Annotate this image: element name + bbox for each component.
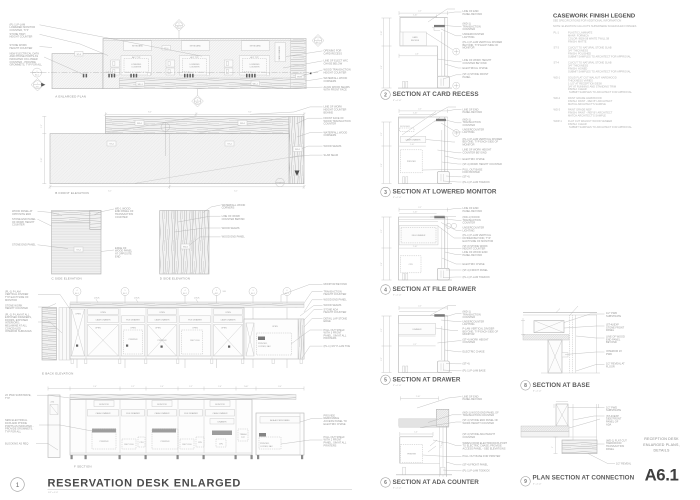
svg-text:A6.1: A6.1: [183, 292, 187, 295]
svg-text:1/2" REVEAL: 1/2" REVEAL: [616, 462, 632, 466]
svg-text:LOCK: LOCK: [134, 298, 140, 300]
svg-text:HEIGHT COUNTER: HEIGHT COUNTER: [10, 35, 33, 39]
svg-text:2'-10": 2'-10": [41, 157, 43, 162]
svg-text:3" = 1'-0": 3" = 1'-0": [393, 100, 402, 102]
svg-text:1'-10": 1'-10": [413, 246, 418, 248]
svg-text:WD-1: WD-1: [295, 149, 301, 151]
svg-text:CORNERS: CORNERS: [324, 79, 337, 83]
svg-text:A6.1: A6.1: [316, 41, 320, 44]
svg-text:FOR PRINTER: FOR PRINTER: [463, 170, 480, 174]
svg-text:PLAN SECTION AT CONNECTION: PLAN SECTION AT CONNECTION: [533, 475, 635, 482]
svg-text:(ST-4): (ST-4): [463, 362, 470, 366]
svg-text:CPU: CPU: [409, 264, 414, 266]
svg-text:COUNTER BEHIND: COUNTER BEHIND: [222, 217, 245, 221]
svg-text:2'-2": 2'-2": [418, 108, 422, 110]
svg-text:HEIGHT COUNTER: HEIGHT COUNTER: [10, 46, 33, 50]
svg-text:SUBSTRATE: SUBSTRATE: [606, 314, 621, 318]
svg-text:A6.1: A6.1: [75, 292, 79, 295]
svg-text:CASH DRAWER: CASH DRAWER: [221, 319, 236, 322]
svg-text:LIGHTING: LIGHTING: [463, 35, 475, 39]
svg-text:1'-6": 1'-6": [218, 386, 222, 388]
svg-text:4: 4: [185, 290, 186, 292]
svg-text:ALT. TYP: ALT. TYP: [132, 56, 141, 59]
svg-text:ELECTRIC CHASE: ELECTRIC CHASE: [324, 422, 346, 426]
svg-text:MONITOR: MONITOR: [5, 298, 17, 302]
svg-text:1'-4": 1'-4": [414, 432, 418, 434]
svg-text:PRINTER: PRINTER: [407, 161, 416, 163]
svg-text:EACH SIDE OF MONITOR: EACH SIDE OF MONITOR: [463, 239, 494, 243]
svg-text:PRINTER: PRINTER: [158, 340, 167, 342]
svg-text:B FRONT ELEVATION: B FRONT ELEVATION: [55, 191, 89, 195]
svg-text:6" = 1'-0": 6" = 1'-0": [533, 484, 542, 486]
svg-text:COUNTER: COUNTER: [131, 67, 141, 69]
svg-text:5: 5: [384, 378, 387, 384]
svg-text:CASH DRAWER: CASH DRAWER: [96, 319, 111, 322]
svg-text:WOOD SEAMS: WOOD SEAMS: [324, 303, 342, 307]
svg-text:2'-2": 2'-2": [413, 344, 417, 346]
svg-text:BEYOND: BEYOND: [606, 340, 617, 344]
svg-text:ENLARGED PLANS,: ENLARGED PLANS,: [643, 443, 680, 447]
svg-text:ACCESS PANEL - SEE ELEVATIONS: ACCESS PANEL - SEE ELEVATIONS: [463, 447, 506, 451]
svg-text:(PL-1) P-LAM TOEKICK: (PL-1) P-LAM TOEKICK: [463, 275, 491, 279]
svg-text:WORK HEIGHT COUNTER: WORK HEIGHT COUNTER: [463, 421, 495, 425]
svg-text:5: 5: [216, 290, 217, 292]
svg-text:2'-6": 2'-6": [415, 54, 419, 56]
svg-text:1'-6": 1'-6": [93, 386, 97, 388]
svg-text:COUNTER: COUNTER: [115, 215, 128, 219]
svg-text:2'-2": 2'-2": [381, 328, 383, 332]
svg-text:DRAWER: DRAWER: [413, 328, 422, 331]
svg-text:PRINTERS: PRINTERS: [324, 336, 337, 340]
svg-text:PANEL: PANEL: [606, 447, 615, 451]
svg-text:1'-5": 1'-5": [41, 124, 43, 128]
svg-text:6'-1": 6'-1": [234, 190, 238, 192]
svg-text:CARD READER: CARD READER: [278, 46, 281, 61]
svg-text:MONITOR: MONITOR: [99, 404, 109, 406]
svg-text:LOWERED: LOWERED: [131, 64, 142, 66]
svg-text:1: 1: [16, 482, 20, 489]
svg-text:DRAWER: DRAWER: [218, 421, 227, 424]
svg-text:TYP FOR ALL: TYP FOR ALL: [5, 429, 22, 433]
svg-text:2'-6": 2'-6": [381, 65, 383, 69]
svg-text:PANEL BEYOND: PANEL BEYOND: [463, 12, 483, 16]
svg-text:ALT. TYP: ALT. TYP: [250, 56, 259, 59]
svg-text:6'-1": 6'-1": [108, 190, 112, 192]
svg-text:RECYCLE: RECYCLE: [190, 340, 200, 342]
svg-text:4: 4: [280, 183, 281, 185]
svg-text:COUNTER BEYOND: COUNTER BEYOND: [463, 61, 487, 65]
svg-text:STONE END PANEL: STONE END PANEL: [12, 243, 36, 247]
svg-text:LOWERED: LOWERED: [249, 64, 260, 66]
svg-text:5: 5: [125, 290, 126, 292]
svg-text:SEE SPECIFICATIONS FOR ADDITIO: SEE SPECIFICATIONS FOR ADDITIONAL INFORM…: [553, 19, 621, 23]
svg-text:PANEL BEYOND: PANEL BEYOND: [463, 110, 483, 114]
svg-text:KEYBOARD: KEYBOARD: [400, 125, 411, 128]
svg-text:HEIGHT COUNTER: HEIGHT COUNTER: [324, 71, 347, 75]
svg-text:FILE DRAWER: FILE DRAWER: [126, 319, 140, 322]
svg-text:OPEN: OPEN: [225, 312, 231, 314]
svg-text:COUNTER: COUNTER: [463, 221, 476, 225]
svg-text:COUNTER: COUNTER: [463, 340, 476, 344]
svg-text:6: 6: [384, 480, 387, 486]
svg-text:9: 9: [524, 479, 527, 485]
svg-text:D SIDE ELEVATION: D SIDE ELEVATION: [160, 277, 190, 281]
svg-text:2'-2": 2'-2": [381, 229, 383, 233]
svg-text:1'-10": 1'-10": [413, 112, 418, 114]
svg-text:WD-1: WD-1: [137, 123, 143, 125]
svg-text:CASH DRAWER: CASH DRAWER: [213, 412, 228, 415]
svg-text:PANEL: PANEL: [606, 328, 615, 332]
svg-text:2'-10": 2'-10": [381, 30, 383, 35]
svg-text:OPEN: OPEN: [130, 328, 136, 330]
svg-text:COPIER, FAX: COPIER, FAX: [258, 345, 271, 348]
svg-text:1'-2": 1'-2": [189, 386, 193, 388]
svg-text:WD-1: WD-1: [253, 83, 259, 85]
svg-text:COUNTER: COUNTER: [463, 315, 476, 319]
svg-text:COUNTER: COUNTER: [190, 67, 200, 69]
svg-text:ELECTRICAL CHASE: ELECTRICAL CHASE: [463, 66, 488, 70]
svg-text:SECTION AT ADA COUNTER: SECTION AT ADA COUNTER: [393, 479, 480, 486]
svg-text:A6.1: A6.1: [196, 101, 200, 104]
svg-text:SUBSTRATE: SUBSTRATE: [606, 408, 621, 412]
svg-text:COUNTER: COUNTER: [463, 123, 476, 127]
svg-text:A6.1: A6.1: [36, 85, 40, 88]
svg-text:MATCH ARCHITECT'S SAMPLE: MATCH ARCHITECT'S SAMPLE: [568, 113, 606, 117]
svg-text:1'-60": 1'-60": [244, 386, 249, 388]
svg-text:2'-2": 2'-2": [418, 11, 422, 13]
svg-text:1'-10": 1'-10": [413, 14, 418, 16]
svg-text:WOOD END PANEL: WOOD END PANEL: [222, 235, 246, 239]
svg-text:OPPOSITE END: OPPOSITE END: [12, 212, 31, 216]
svg-text:1'-6" 1'-2": 1'-6" 1'-2": [182, 72, 190, 74]
svg-text:MONITOR: MONITOR: [463, 142, 475, 146]
svg-text:CPU: CPU: [139, 442, 144, 444]
svg-text:2'-2": 2'-2": [418, 207, 422, 209]
svg-text:C SIDE ELEVATION: C SIDE ELEVATION: [52, 277, 82, 281]
svg-text:INTERIOR SURFACES: INTERIOR SURFACES: [5, 329, 32, 333]
svg-text:NOTE: ELEVATION CALLOUTS SUPER: NOTE: ELEVATION CALLOUTS SUPERSEDE SCHED…: [553, 24, 637, 28]
svg-text:LIGHTING: LIGHTING: [463, 322, 475, 326]
svg-text:SUBMIT SAMPLES TO ARCHITECT FO: SUBMIT SAMPLES TO ARCHITECT FOR APPROVAL: [569, 90, 632, 94]
svg-text:A6.1: A6.1: [251, 292, 255, 295]
svg-text:CPU: CPU: [198, 442, 203, 444]
svg-text:FLOOR: FLOOR: [606, 364, 615, 368]
svg-text:ADA ACCESS PANEL: ADA ACCESS PANEL: [270, 419, 291, 422]
svg-text:A6.1: A6.1: [215, 292, 219, 295]
svg-text:COUNTER: COUNTER: [250, 67, 260, 69]
svg-text:(ST-4) FRONT PANEL: (ST-4) FRONT PANEL: [463, 462, 489, 466]
svg-text:SECTION AT LOWERED MONITOR: SECTION AT LOWERED MONITOR: [393, 189, 497, 196]
svg-text:KEYBOARD: KEYBOARD: [250, 45, 262, 48]
svg-text:1'-6": 1'-6": [160, 386, 164, 388]
svg-text:A6.1: A6.1: [123, 292, 127, 295]
svg-text:5: 5: [197, 100, 198, 102]
svg-text:WDP-1: WDP-1: [554, 119, 563, 123]
svg-text:OPEN: OPEN: [221, 328, 227, 330]
svg-text:TYP: TYP: [241, 437, 246, 439]
svg-text:COUNTER: COUNTER: [463, 435, 476, 439]
svg-text:WOOD SEAMS: WOOD SEAMS: [324, 144, 342, 148]
svg-text:SIM: SIM: [223, 291, 227, 293]
svg-text:SECTION AT DRAWER: SECTION AT DRAWER: [393, 377, 461, 384]
svg-text:FINISH: MATTE: FINISH: MATTE: [568, 39, 587, 43]
svg-text:DETAILS: DETAILS: [653, 449, 670, 453]
svg-text:ELECTRIC CHASE: ELECTRIC CHASE: [463, 157, 485, 161]
svg-text:CARD RECESS: CARD RECESS: [324, 52, 343, 56]
svg-text:KEYBOARD: KEYBOARD: [132, 45, 144, 48]
svg-text:ELECTRIC CHASE: ELECTRIC CHASE: [463, 350, 485, 354]
svg-text:LOCK: LOCK: [94, 298, 100, 300]
svg-text:PRINTER,: PRINTER,: [258, 343, 268, 345]
svg-text:HEIGHT COUNTER: HEIGHT COUNTER: [324, 310, 347, 314]
svg-text:RECESS: RECESS: [411, 40, 420, 42]
svg-text:SECTION AT BASE: SECTION AT BASE: [533, 382, 590, 389]
svg-text:4: 4: [384, 287, 387, 293]
svg-text:WITH FRONT FACE: WITH FRONT FACE: [324, 88, 348, 92]
svg-text:RECYCLE: RECYCLE: [182, 444, 192, 446]
svg-text:CARD: CARD: [412, 36, 418, 39]
svg-text:6: 6: [287, 290, 288, 292]
svg-text:3" = 1'-0": 3" = 1'-0": [393, 385, 402, 387]
svg-text:CHASE BELOW: CHASE BELOW: [324, 62, 343, 66]
svg-text:CASH DRAWER: CASH DRAWER: [406, 139, 421, 142]
svg-text:3" = 1'-0": 3" = 1'-0": [393, 197, 402, 199]
svg-text:ST-3: ST-3: [554, 46, 560, 50]
svg-text:END: END: [115, 254, 121, 258]
svg-text:3: 3: [384, 190, 387, 196]
svg-text:EDGE: EDGE: [324, 319, 332, 323]
svg-text:LIGHTING: LIGHTING: [463, 228, 475, 232]
svg-text:RECEPTION DESK: RECEPTION DESK: [644, 437, 679, 441]
svg-text:2'-6": 2'-6": [381, 163, 383, 167]
svg-text:8'-0": 8'-0": [148, 112, 152, 114]
svg-text:1: 1: [165, 127, 166, 129]
svg-text:COUNTER BEYOND: COUNTER BEYOND: [463, 150, 487, 154]
svg-text:MONITOR: MONITOR: [215, 404, 225, 406]
svg-text:MONITOR BEYOND: MONITOR BEYOND: [324, 282, 348, 286]
svg-text:(PL-1) P-LAM TOEKICK: (PL-1) P-LAM TOEKICK: [463, 468, 491, 472]
svg-text:PANEL: PANEL: [463, 75, 472, 79]
svg-text:COUNTER: COUNTER: [12, 223, 25, 227]
svg-text:A ENLARGED PLAN: A ENLARGED PLAN: [55, 94, 86, 98]
svg-text:BEHIND: BEHIND: [324, 110, 334, 114]
svg-text:PRINTER: PRINTER: [161, 441, 170, 443]
svg-text:LOCK: LOCK: [194, 298, 200, 300]
svg-text:GROMMETS, TYP FOR ALL: GROMMETS, TYP FOR ALL: [10, 63, 43, 67]
svg-text:(ST-4) FRONT PANEL: (ST-4) FRONT PANEL: [463, 268, 489, 272]
svg-text:PRINTER,: PRINTER,: [260, 443, 270, 445]
svg-text:PANEL BEYOND: PANEL BEYOND: [463, 397, 483, 401]
svg-text:COUNTER, TYP: COUNTER, TYP: [10, 28, 29, 32]
svg-text:WD-3: WD-3: [554, 108, 561, 112]
svg-text:FILE DRAWER: FILE DRAWER: [412, 234, 426, 237]
svg-text:WD-1: WD-1: [240, 123, 246, 125]
svg-text:PL-1: PL-1: [554, 31, 560, 35]
svg-text:MONITOR: MONITOR: [157, 404, 167, 406]
svg-text:WOOD END PANEL: WOOD END PANEL: [324, 298, 348, 302]
svg-text:1: 1: [37, 83, 38, 85]
svg-text:SUBMIT SAMPLES TO ARCHITECT FO: SUBMIT SAMPLES TO ARCHITECT FOR APPROVAL: [568, 69, 631, 73]
svg-text:1'-10": 1'-10": [413, 211, 418, 213]
svg-text:COUNTER: COUNTER: [324, 122, 337, 126]
svg-text:HEIGHT COUNTER: HEIGHT COUNTER: [324, 292, 347, 296]
svg-text:CORNERS: CORNERS: [222, 206, 235, 210]
svg-text:(PL-1) P-LAM TOEKICK: (PL-1) P-LAM TOEKICK: [463, 180, 491, 184]
svg-text:PRINTER: PRINTER: [129, 339, 138, 341]
svg-text:PANEL BEYOND: PANEL BEYOND: [463, 253, 483, 257]
svg-text:FILE DRAWER: FILE DRAWER: [188, 319, 202, 322]
svg-text:8: 8: [524, 383, 527, 389]
svg-text:PRINTER: PRINTER: [407, 454, 416, 456]
svg-text:SUBMIT SAMPLES TO ARCHITECT FO: SUBMIT SAMPLES TO ARCHITECT FOR APPROVAL: [568, 54, 631, 58]
svg-text:3" = 1'-0": 3" = 1'-0": [393, 295, 402, 297]
svg-text:PWD: PWD: [606, 352, 612, 356]
svg-text:OPEN: OPEN: [272, 326, 278, 328]
svg-text:PRINTERS: PRINTERS: [324, 443, 337, 447]
svg-text:RESERVATION DESK ENLARGED: RESERVATION DESK ENLARGED: [48, 478, 242, 490]
svg-text:LIGHTING: LIGHTING: [463, 130, 475, 134]
svg-text:MONITOR: MONITOR: [463, 46, 475, 50]
svg-text:CASH DRAWER: CASH DRAWER: [155, 412, 170, 415]
svg-text:FILE DRAWER: FILE DRAWER: [184, 412, 198, 415]
svg-text:WD-1: WD-1: [554, 76, 561, 80]
svg-text:OPEN: OPEN: [100, 312, 106, 314]
svg-text:1'-2": 1'-2": [131, 386, 135, 388]
svg-text:9'-2": 9'-2": [248, 112, 252, 114]
svg-text:ELECTRIC CHASE: ELECTRIC CHASE: [463, 262, 485, 266]
svg-text:CORNERS: CORNERS: [324, 133, 337, 137]
svg-text:ST-4: ST-4: [554, 61, 560, 65]
svg-text:1'-6" 1'-2": 1'-6" 1'-2": [106, 72, 114, 74]
svg-text:A6.1: A6.1: [177, 26, 181, 29]
svg-text:(ST-4) WORK HEIGHT COUNTER: (ST-4) WORK HEIGHT COUNTER: [463, 162, 502, 166]
svg-text:OPEN: OPEN: [155, 328, 161, 330]
svg-text:1'-10": 1'-10": [410, 144, 415, 146]
svg-text:HEIGHT COUNTER: HEIGHT COUNTER: [463, 247, 486, 251]
svg-text:2'-2": 2'-2": [418, 306, 422, 308]
svg-text:6: 6: [179, 24, 180, 26]
svg-text:CASH DRAWER: CASH DRAWER: [96, 412, 111, 415]
svg-text:WOOD SEAMS: WOOD SEAMS: [222, 226, 240, 230]
svg-text:E BACK ELEVATION: E BACK ELEVATION: [42, 372, 73, 376]
svg-text:PRINTER: PRINTER: [100, 441, 109, 443]
svg-text:COPIER, FAX: COPIER, FAX: [260, 445, 273, 448]
svg-text:2: 2: [318, 39, 319, 41]
svg-text:MATCH ARCHITECT'S SAMPLE: MATCH ARCHITECT'S SAMPLE: [568, 102, 606, 106]
svg-text:SUBMIT SAMPLES TO ARCHITECT FO: SUBMIT SAMPLES TO ARCHITECT FOR APPROVAL: [569, 125, 632, 129]
svg-text:2'-2": 2'-2": [381, 132, 383, 136]
svg-text:ADA: ADA: [606, 422, 612, 426]
svg-text:OPEN: OPEN: [75, 314, 81, 316]
svg-text:1'-6" 1'-2": 1'-6" 1'-2": [244, 72, 252, 74]
svg-text:RECYCLE: RECYCLE: [124, 444, 134, 446]
svg-text:(PL-1) P-LAM BASE: (PL-1) P-LAM BASE: [463, 369, 486, 373]
svg-text:MONITOR: MONITOR: [463, 332, 475, 336]
svg-text:OPEN: OPEN: [192, 328, 198, 330]
svg-text:CASH DRAWER: CASH DRAWER: [155, 319, 170, 322]
svg-text:F SECTION: F SECTION: [74, 465, 92, 469]
svg-text:ALT. TYP: ALT. TYP: [190, 56, 199, 59]
svg-text:2'-2": 2'-2": [381, 357, 383, 361]
svg-text:2'-6": 2'-6": [381, 262, 383, 266]
svg-text:WD-1: WD-1: [138, 84, 144, 86]
svg-text:2: 2: [384, 92, 387, 98]
svg-text:LOWERED: LOWERED: [189, 64, 200, 66]
svg-text:TYP: TYP: [5, 396, 10, 400]
svg-text:KEYBOARD: KEYBOARD: [190, 45, 202, 48]
svg-text:3'-0": 3'-0": [278, 386, 282, 388]
svg-text:TRANSACTION COUNTER: TRANSACTION COUNTER: [463, 413, 495, 417]
svg-text:3: 3: [253, 290, 254, 292]
svg-text:PULL OUT BASE FOR PRINTER: PULL OUT BASE FOR PRINTER: [463, 454, 501, 458]
svg-text:A6.1: A6.1: [35, 73, 39, 76]
svg-text:FILE DRAWER: FILE DRAWER: [126, 412, 140, 415]
svg-text:COUNTER: COUNTER: [463, 27, 476, 31]
svg-text:TRASH: TRASH: [240, 433, 247, 436]
svg-text:6" = 1'-0": 6" = 1'-0": [533, 391, 542, 393]
svg-text:HEIGHT COUNTER: HEIGHT COUNTER: [5, 306, 28, 310]
svg-text:SECTION AT CARD RECESS: SECTION AT CARD RECESS: [393, 91, 479, 98]
svg-text:(PL-1) 3/4" P-LAM TOE: (PL-1) 3/4" P-LAM TOE: [324, 344, 351, 348]
svg-text:WD-2: WD-2: [554, 96, 561, 100]
svg-text:(ST-4): (ST-4): [463, 175, 470, 179]
svg-text:OPEN: OPEN: [95, 328, 101, 330]
svg-text:3" = 1'-0": 3" = 1'-0": [393, 488, 402, 490]
svg-text:4: 4: [77, 290, 78, 292]
svg-text:CASEWORK FINISH LEGEND: CASEWORK FINISH LEGEND: [553, 14, 635, 20]
svg-text:PANEL BEYOND: PANEL BEYOND: [463, 209, 483, 213]
svg-text:SECTION AT FILE DRAWER: SECTION AT FILE DRAWER: [393, 286, 477, 293]
svg-text:BLOCKING AS REQ: BLOCKING AS REQ: [5, 441, 28, 445]
svg-text:SLAB SEAM: SLAB SEAM: [324, 153, 338, 157]
svg-text:1/2" = 1'-0": 1/2" = 1'-0": [48, 492, 58, 494]
svg-text:1'-10": 1'-10": [416, 396, 421, 398]
svg-text:WD-1: WD-1: [183, 247, 189, 249]
svg-text:CPU: CPU: [219, 444, 224, 446]
svg-text:A6.1: A6.1: [645, 466, 679, 485]
svg-text:OPEN: OPEN: [159, 312, 165, 314]
